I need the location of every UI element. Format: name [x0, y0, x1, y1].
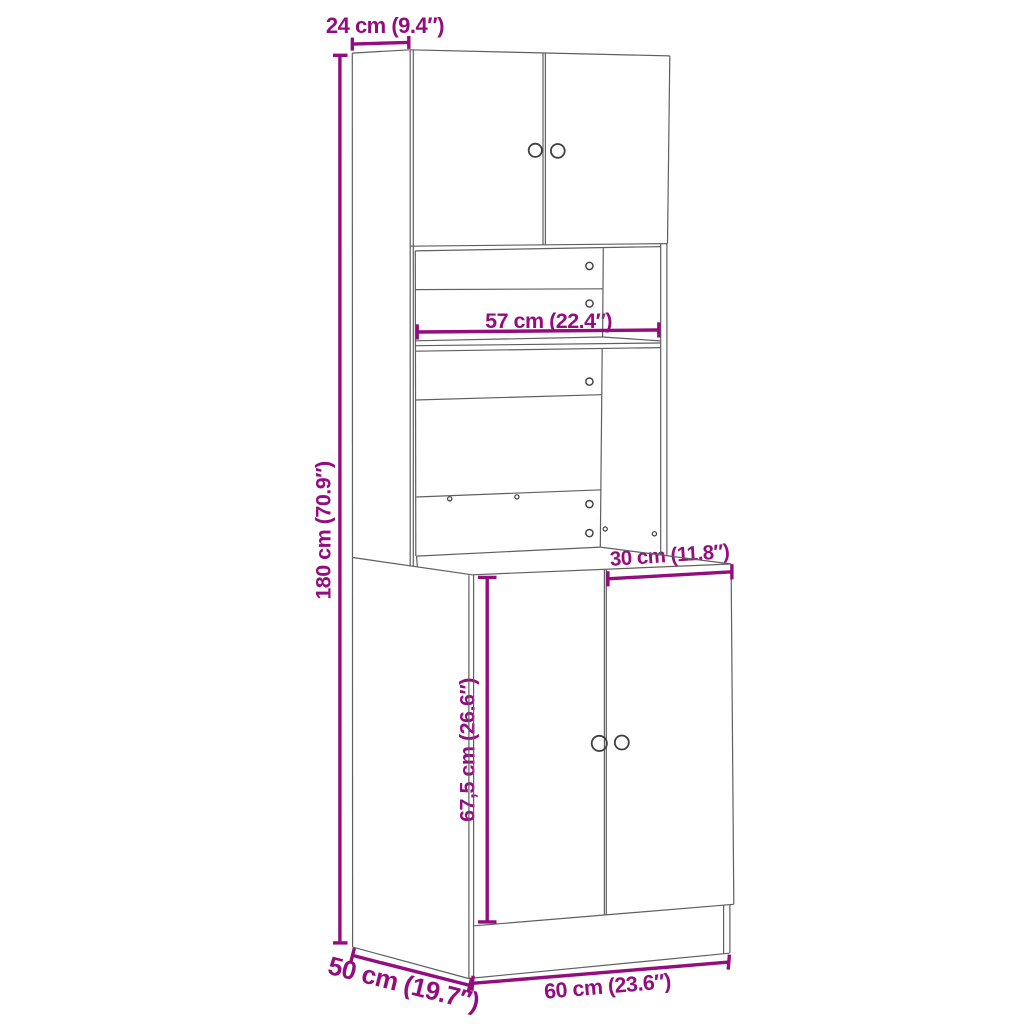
svg-text:24 cm (9.4″): 24 cm (9.4″) [326, 13, 444, 38]
svg-text:67,5 cm (26.6″): 67,5 cm (26.6″) [456, 678, 480, 822]
svg-text:180 cm (70.9″): 180 cm (70.9″) [312, 461, 336, 600]
